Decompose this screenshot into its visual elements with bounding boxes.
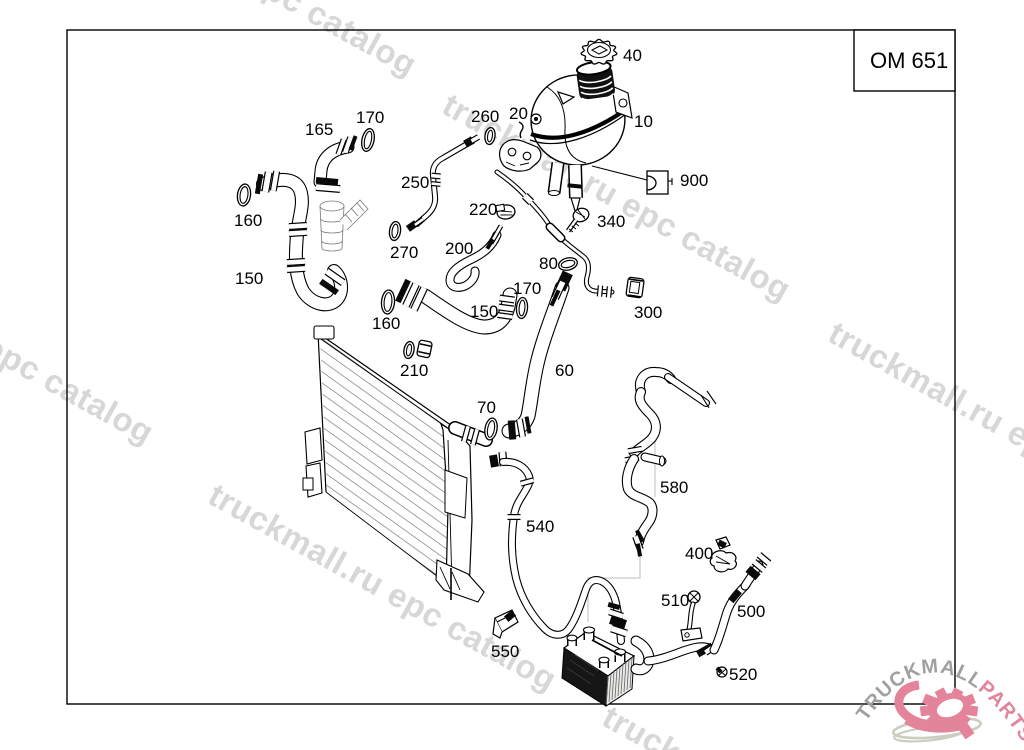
svg-text:300: 300 xyxy=(634,303,662,322)
svg-text:160: 160 xyxy=(372,314,400,333)
svg-text:60: 60 xyxy=(555,361,574,380)
svg-text:150: 150 xyxy=(470,302,498,321)
svg-text:220: 220 xyxy=(469,200,497,219)
svg-text:165: 165 xyxy=(305,120,333,139)
svg-text:400: 400 xyxy=(685,544,713,563)
svg-text:510: 510 xyxy=(661,591,689,610)
svg-text:170: 170 xyxy=(356,108,384,127)
svg-text:200: 200 xyxy=(445,239,473,258)
svg-text:260: 260 xyxy=(471,107,499,126)
svg-text:10: 10 xyxy=(634,112,653,131)
svg-text:270: 270 xyxy=(390,243,418,262)
svg-text:210: 210 xyxy=(400,361,428,380)
svg-text:540: 540 xyxy=(526,517,554,536)
svg-text:170: 170 xyxy=(513,279,541,298)
svg-text:520: 520 xyxy=(729,665,757,684)
svg-text:80: 80 xyxy=(539,254,558,273)
svg-text:340: 340 xyxy=(597,212,625,231)
svg-text:900: 900 xyxy=(680,171,708,190)
svg-text:70: 70 xyxy=(477,398,496,417)
svg-text:250: 250 xyxy=(401,173,429,192)
svg-text:160: 160 xyxy=(234,211,262,230)
svg-text:150: 150 xyxy=(235,269,263,288)
svg-text:580: 580 xyxy=(660,478,688,497)
svg-text:550: 550 xyxy=(491,642,519,661)
svg-text:OM 651: OM 651 xyxy=(870,48,948,73)
svg-text:500: 500 xyxy=(737,602,765,621)
svg-text:20: 20 xyxy=(509,104,528,123)
svg-text:40: 40 xyxy=(623,46,642,65)
